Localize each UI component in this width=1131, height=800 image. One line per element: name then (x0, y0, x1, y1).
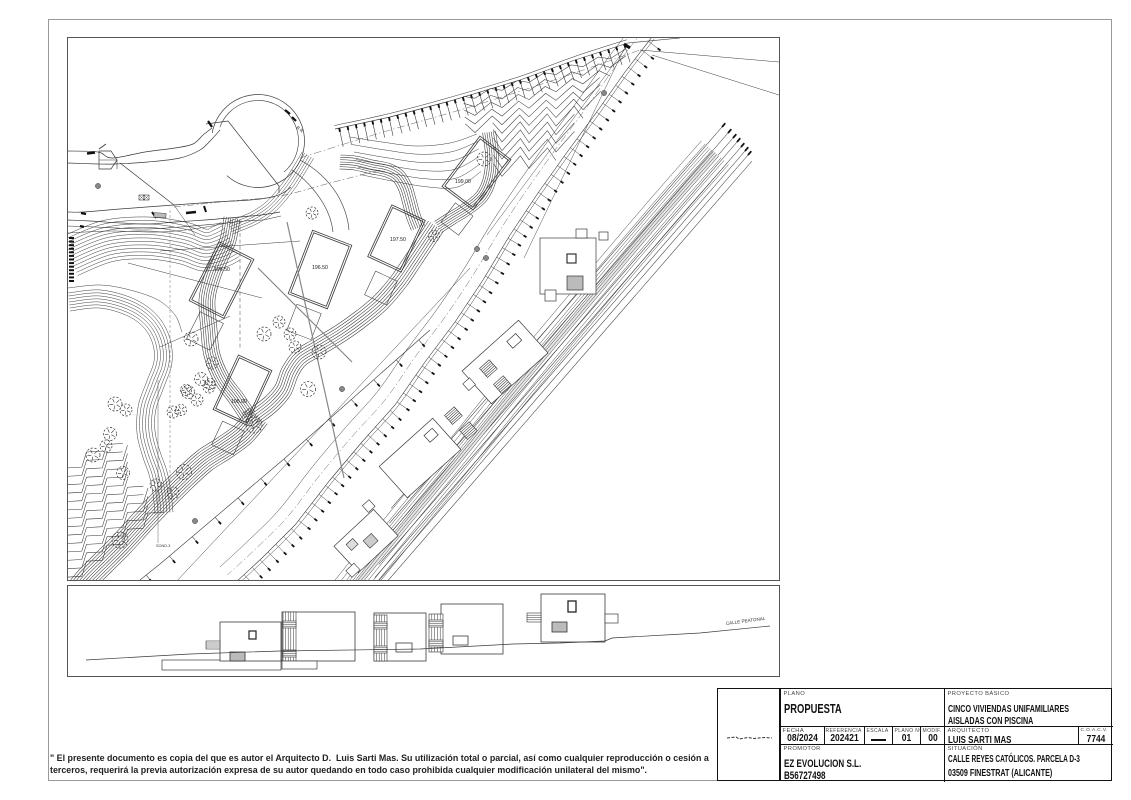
svg-text:CALLE PEATONAL: CALLE PEATONAL (725, 616, 766, 626)
svg-text:199.00: 199.00 (455, 179, 471, 185)
svg-text:196.50: 196.50 (312, 265, 328, 271)
svg-text:197.50: 197.50 (390, 237, 406, 243)
svg-text:SOND-3: SOND-3 (156, 544, 170, 548)
svg-text:195.00: 195.00 (231, 399, 247, 405)
svg-text:196.50: 196.50 (214, 267, 230, 273)
